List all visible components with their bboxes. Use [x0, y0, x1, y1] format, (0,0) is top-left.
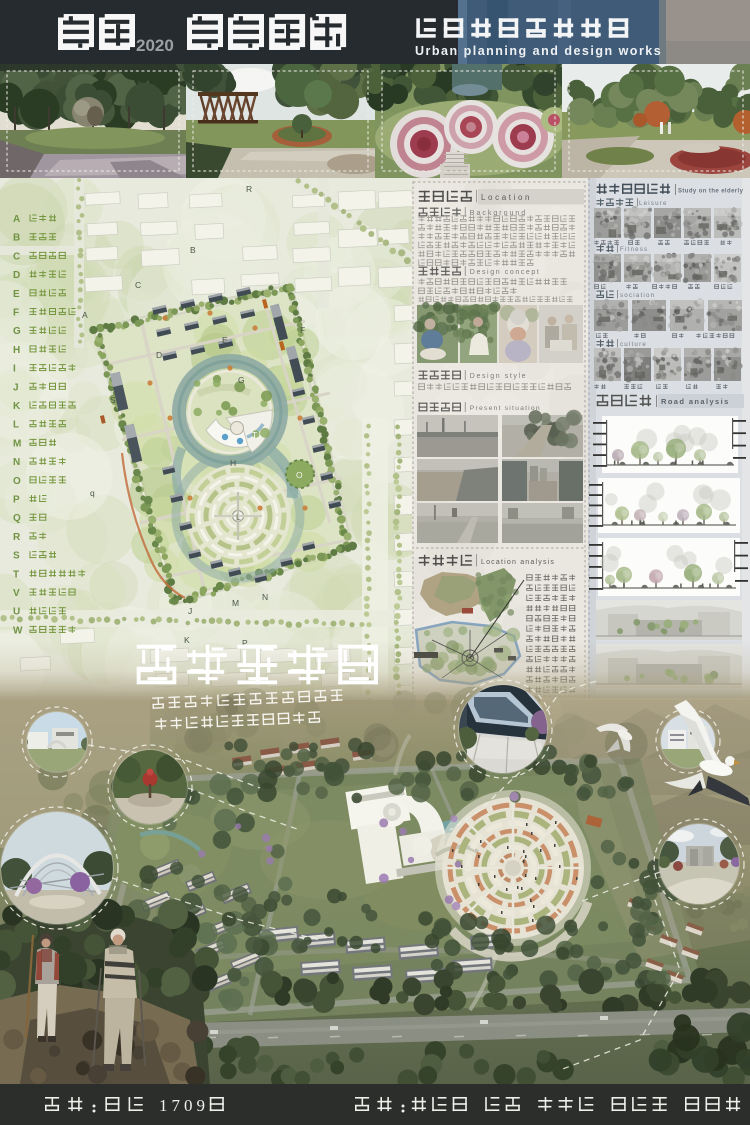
svg-text:H: H	[13, 345, 20, 356]
svg-text:Design style: Design style	[470, 373, 527, 380]
svg-text:M: M	[13, 438, 21, 449]
svg-text:Urban planning and design work: Urban planning and design works	[415, 44, 662, 58]
svg-text:2020: 2020	[136, 36, 174, 55]
svg-text:P: P	[13, 495, 20, 506]
svg-text:D: D	[13, 270, 20, 281]
svg-text:WU: WU	[228, 485, 241, 494]
svg-text:Present situation: Present situation	[470, 405, 541, 412]
svg-text:H: H	[230, 458, 236, 468]
svg-text:V: V	[13, 588, 20, 599]
svg-text:F: F	[300, 325, 305, 335]
svg-text:Fitness: Fitness	[620, 246, 648, 253]
svg-text:R: R	[13, 532, 21, 543]
svg-text:Leisure: Leisure	[639, 200, 668, 207]
svg-text:N: N	[262, 592, 268, 602]
svg-text:E: E	[13, 289, 20, 300]
svg-text:L: L	[236, 512, 241, 522]
svg-text:Location analysis: Location analysis	[481, 559, 555, 566]
svg-text:M: M	[232, 598, 239, 608]
svg-text:I: I	[13, 364, 16, 375]
svg-text:F: F	[13, 308, 19, 319]
svg-text:culture: culture	[620, 341, 647, 348]
svg-text:S: S	[13, 551, 20, 562]
svg-text:E: E	[222, 335, 228, 345]
svg-text:Location: Location	[481, 193, 532, 202]
svg-text:Design concept: Design concept	[470, 269, 541, 276]
svg-text:A: A	[82, 310, 88, 320]
svg-text:C: C	[13, 251, 20, 262]
svg-text:Q: Q	[13, 513, 21, 524]
svg-text:J: J	[188, 606, 192, 616]
svg-text:U: U	[13, 607, 20, 618]
svg-text:1709: 1709	[159, 1096, 209, 1115]
svg-text:J: J	[13, 382, 19, 393]
svg-text:N: N	[13, 457, 20, 468]
svg-text:C: C	[135, 280, 141, 290]
svg-text:K: K	[13, 401, 21, 412]
svg-text:sociation: sociation	[620, 292, 655, 299]
svg-text:D: D	[156, 350, 162, 360]
svg-text:T: T	[252, 430, 257, 440]
svg-text:B: B	[13, 233, 20, 244]
svg-text:B: B	[190, 245, 196, 255]
svg-text:R: R	[246, 184, 252, 194]
svg-text:G: G	[238, 375, 245, 385]
svg-text:O: O	[296, 470, 303, 480]
svg-text:Study on the elderly: Study on the elderly	[678, 189, 744, 195]
svg-text:L: L	[13, 420, 19, 431]
svg-text:Road analysis: Road analysis	[661, 397, 730, 406]
svg-text:T: T	[13, 569, 19, 580]
svg-text:G: G	[13, 326, 21, 337]
svg-text:A: A	[13, 214, 20, 225]
svg-text:O: O	[13, 476, 21, 487]
svg-text:q: q	[90, 488, 95, 498]
svg-text:S: S	[110, 395, 116, 405]
